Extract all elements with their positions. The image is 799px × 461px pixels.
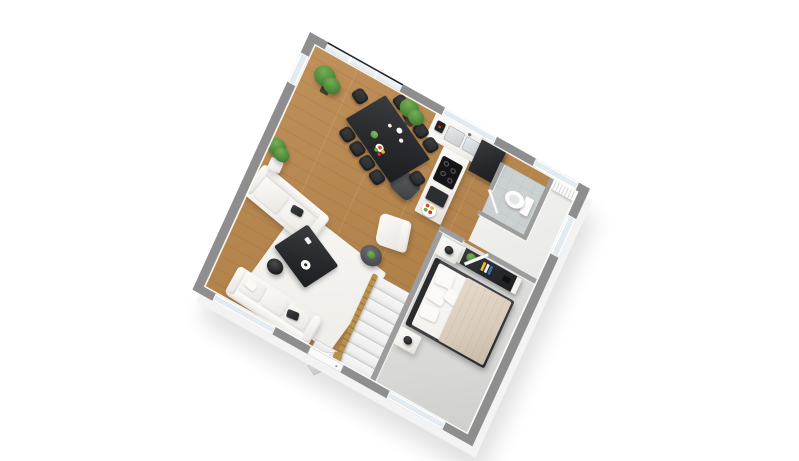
book-row [480,262,493,276]
cup [398,138,404,144]
black-box-decor [502,275,512,284]
book-on-table [304,237,312,245]
plant-small-side-table [366,249,377,260]
pitcher [395,127,403,135]
bedside-lamp [443,244,454,256]
bedside-lamp [402,334,413,346]
fruit-bowl [374,142,385,153]
page: { "scene": { "description": "3D isometri… [0,0,799,450]
burner-icon [446,177,453,184]
coffee-maker [434,120,446,134]
burner-icon [450,167,457,174]
floor-plan-scene [192,32,590,446]
cup [387,123,392,128]
salad-bowl [369,129,380,139]
fruit-icon [428,210,433,215]
floor-plan-stage [0,0,799,450]
